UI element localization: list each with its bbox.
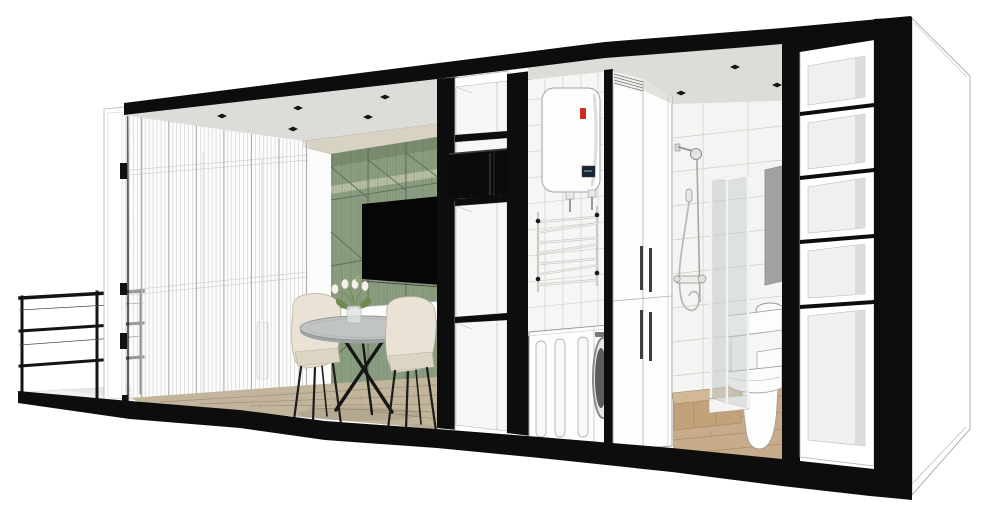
section-column-d bbox=[782, 36, 800, 462]
wall-mounted-tv bbox=[362, 196, 441, 285]
washing-machine bbox=[529, 325, 613, 444]
mid-shelf-column bbox=[449, 71, 508, 437]
bathroom bbox=[672, 101, 784, 463]
mirror-panel bbox=[765, 166, 782, 285]
glass-vase bbox=[347, 306, 361, 323]
heater-display bbox=[582, 166, 595, 177]
sheer-curtain-wall bbox=[128, 115, 308, 399]
folding-glass-screen bbox=[711, 176, 748, 408]
section-column-e bbox=[874, 17, 912, 497]
exterior-gable-wall bbox=[912, 18, 970, 495]
living-dining-room bbox=[126, 76, 443, 432]
door-hinge bbox=[120, 333, 127, 349]
hand-shower bbox=[686, 189, 692, 202]
shower-head bbox=[691, 149, 702, 160]
gable-face bbox=[912, 18, 970, 495]
door-hinge bbox=[120, 283, 127, 295]
tall-wardrobe-cabinet bbox=[613, 71, 672, 451]
washer-controls bbox=[595, 332, 604, 337]
section-render-canvas bbox=[0, 0, 990, 516]
section-column-b bbox=[507, 71, 531, 436]
heater-logo bbox=[580, 108, 586, 119]
floor-shadow bbox=[298, 407, 422, 421]
door-hinge bbox=[120, 163, 127, 179]
section-column-a bbox=[437, 77, 457, 430]
section-column-c bbox=[604, 69, 613, 450]
right-storage-column bbox=[800, 40, 874, 466]
scene-svg bbox=[0, 0, 990, 516]
curtain-sheet bbox=[128, 115, 308, 399]
flower-bud bbox=[355, 275, 360, 282]
microwave bbox=[449, 149, 507, 201]
